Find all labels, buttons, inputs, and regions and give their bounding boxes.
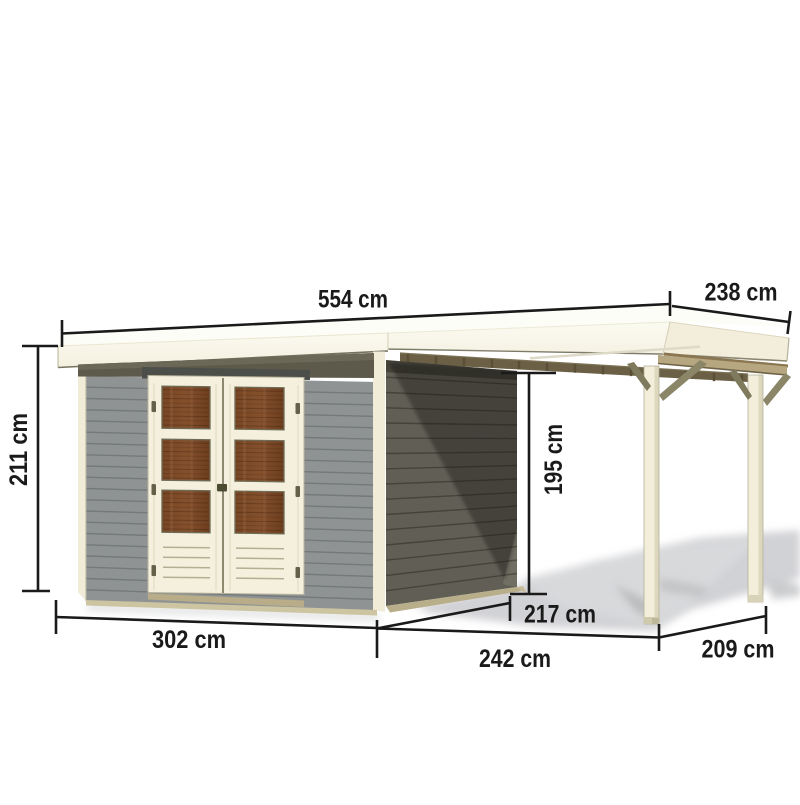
svg-text:209 cm: 209 cm — [702, 636, 775, 664]
svg-text:242 cm: 242 cm — [479, 645, 551, 673]
svg-text:302 cm: 302 cm — [152, 626, 226, 654]
svg-text:238 cm: 238 cm — [705, 279, 778, 307]
svg-text:195 cm: 195 cm — [540, 424, 568, 495]
svg-text:554 cm: 554 cm — [318, 286, 388, 314]
svg-text:217 cm: 217 cm — [524, 601, 596, 629]
svg-text:211 cm: 211 cm — [5, 413, 33, 486]
